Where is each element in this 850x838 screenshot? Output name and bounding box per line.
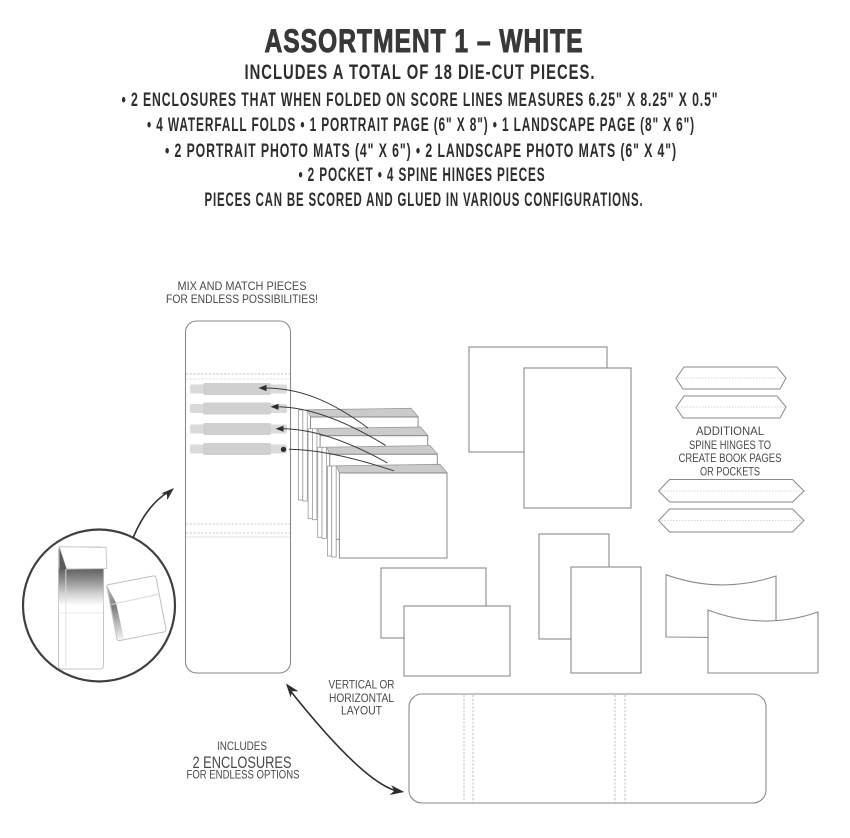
svg-text:MIX AND MATCH PIECES: MIX AND MATCH PIECES <box>178 279 307 293</box>
svg-text:FOR ENDLESS POSSIBILITIES!: FOR ENDLESS POSSIBILITIES! <box>166 292 318 306</box>
svg-text:VERTICAL OR: VERTICAL OR <box>329 678 395 692</box>
svg-text:INCLUDES: INCLUDES <box>217 741 267 753</box>
svg-text:INCLUDES A TOTAL OF 18 DIE-CUT: INCLUDES A TOTAL OF 18 DIE-CUT PIECES. <box>245 61 596 84</box>
svg-text:PIECES CAN BE SCORED AND GLUED: PIECES CAN BE SCORED AND GLUED IN VARIOU… <box>205 190 644 211</box>
svg-text:FOR ENDLESS OPTIONS: FOR ENDLESS OPTIONS <box>187 770 300 782</box>
svg-text:OR POCKETS: OR POCKETS <box>700 465 760 479</box>
svg-text:• 2 ENCLOSURES THAT WHEN FOLDE: • 2 ENCLOSURES THAT WHEN FOLDED ON SCORE… <box>122 90 719 111</box>
svg-text:SPINE HINGES TO: SPINE HINGES TO <box>689 438 771 452</box>
svg-text:LAYOUT: LAYOUT <box>341 704 383 718</box>
svg-text:ADDITIONAL: ADDITIONAL <box>696 424 764 438</box>
svg-text:ASSORTMENT 1 – WHITE: ASSORTMENT 1 – WHITE <box>265 23 584 59</box>
svg-text:• 2 PORTRAIT PHOTO MATS (4" X: • 2 PORTRAIT PHOTO MATS (4" X 6") • 2 LA… <box>165 141 677 162</box>
svg-text:• 4 WATERFALL FOLDS • 1 PORTRA: • 4 WATERFALL FOLDS • 1 PORTRAIT PAGE (6… <box>147 115 695 136</box>
svg-text:• 2 POCKET • 4 SPINE HINGES PI: • 2 POCKET • 4 SPINE HINGES PIECES <box>299 165 546 186</box>
svg-text:CREATE BOOK PAGES: CREATE BOOK PAGES <box>679 451 782 465</box>
